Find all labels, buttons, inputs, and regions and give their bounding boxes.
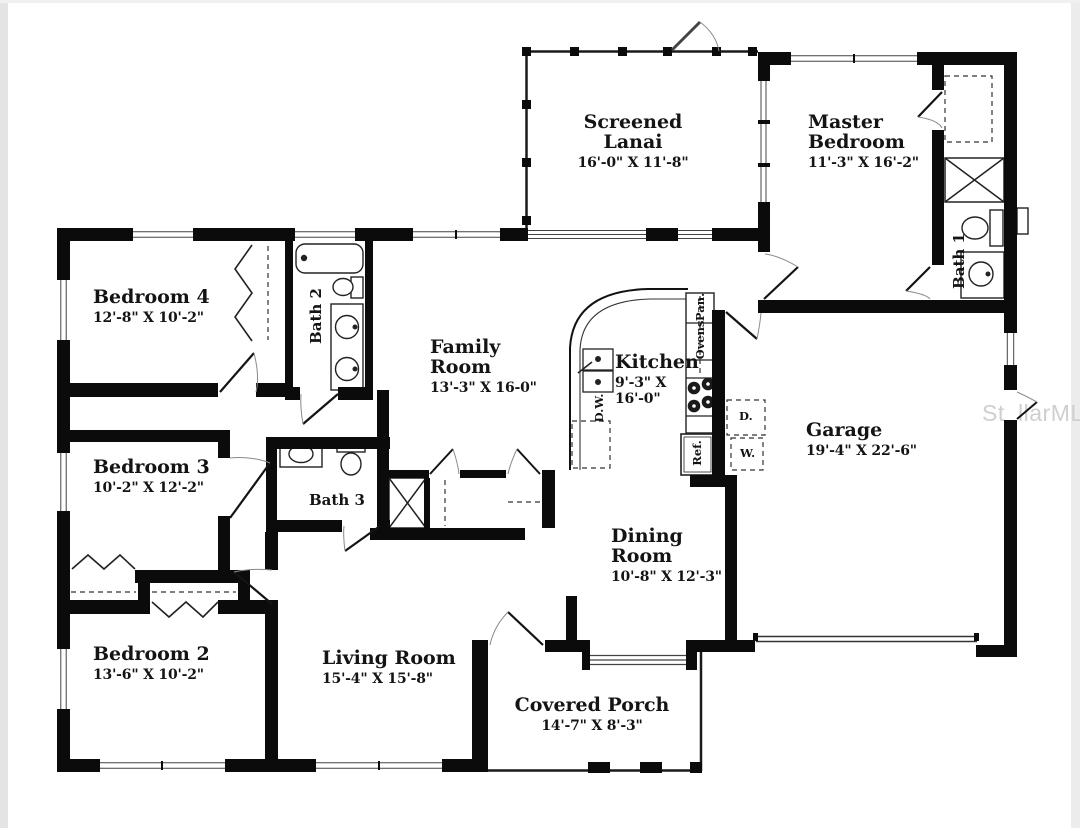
room-name: Bedroom 4 (93, 287, 210, 307)
room-name: Living Room (322, 648, 456, 668)
room-dims: 10'-2" X 12'-2" (93, 480, 210, 496)
room-name: Room (611, 546, 722, 566)
room-dims: 16'-0" X 11'-8" (558, 155, 708, 171)
label-dryer: D. (739, 409, 753, 423)
room-dims: 9'-3" X (615, 375, 699, 391)
room-name: Kitchen (615, 352, 699, 372)
label-covered-porch: Covered Porch 14'-7" X 8'-3" (512, 695, 672, 734)
label-living-room: Living Room 15'-4" X 15'-8" (322, 648, 456, 687)
room-dims: 13'-6" X 10'-2" (93, 667, 210, 683)
room-name: Bedroom 3 (93, 457, 210, 477)
label-pantry: Pan. (693, 293, 707, 321)
room-dims: 13'-3" X 16-0" (430, 380, 537, 396)
label-ovens: Ovens (693, 321, 707, 360)
room-dims: 10'-8" X 12'-3" (611, 569, 722, 585)
label-bedroom2: Bedroom 2 13'-6" X 10'-2" (93, 644, 210, 683)
label-refrigerator: Ref. (690, 440, 704, 465)
label-washer: W. (740, 446, 755, 460)
room-dims: 12'-8" X 10'-2" (93, 310, 210, 326)
label-kitchen: Kitchen 9'-3" X 16'-0" (615, 352, 699, 407)
room-dims: 15'-4" X 15'-8" (322, 671, 456, 687)
room-dims: 19'-4" X 22'-6" (806, 443, 917, 459)
label-dishwasher: D.W. (592, 394, 606, 423)
label-garage: Garage 19'-4" X 22'-6" (806, 420, 917, 459)
label-bedroom3: Bedroom 3 10'-2" X 12'-2" (93, 457, 210, 496)
room-name: Room (430, 357, 537, 377)
room-name: Bedroom (808, 132, 919, 152)
label-screened-lanai: Screened Lanai 16'-0" X 11'-8" (558, 112, 708, 171)
room-dims: 16'-0" (615, 391, 699, 407)
room-name: Bedroom 2 (93, 644, 210, 664)
label-bath2: Bath 2 (307, 288, 325, 344)
label-dining-room: Dining Room 10'-8" X 12'-3" (611, 526, 722, 585)
label-family-room: Family Room 13'-3" X 16-0" (430, 337, 537, 396)
room-name: Screened (558, 112, 708, 132)
room-name: Family (430, 337, 537, 357)
room-name: Covered Porch (512, 695, 672, 715)
label-bath3: Bath 3 (309, 491, 365, 509)
label-master-bedroom: Master Bedroom 11'-3" X 16'-2" (808, 112, 919, 171)
room-dims: 14'-7" X 8'-3" (512, 718, 672, 734)
room-labels: Screened Lanai 16'-0" X 11'-8" Master Be… (0, 0, 1080, 828)
room-dims: 11'-3" X 16'-2" (808, 155, 919, 171)
label-bedroom4: Bedroom 4 12'-8" X 10'-2" (93, 287, 210, 326)
room-name: Dining (611, 526, 722, 546)
room-name: Lanai (558, 132, 708, 152)
floorplan-image: StellarMLS (0, 0, 1080, 828)
room-name: Garage (806, 420, 917, 440)
label-bath1: Bath 1 (950, 233, 968, 289)
room-name: Master (808, 112, 919, 132)
